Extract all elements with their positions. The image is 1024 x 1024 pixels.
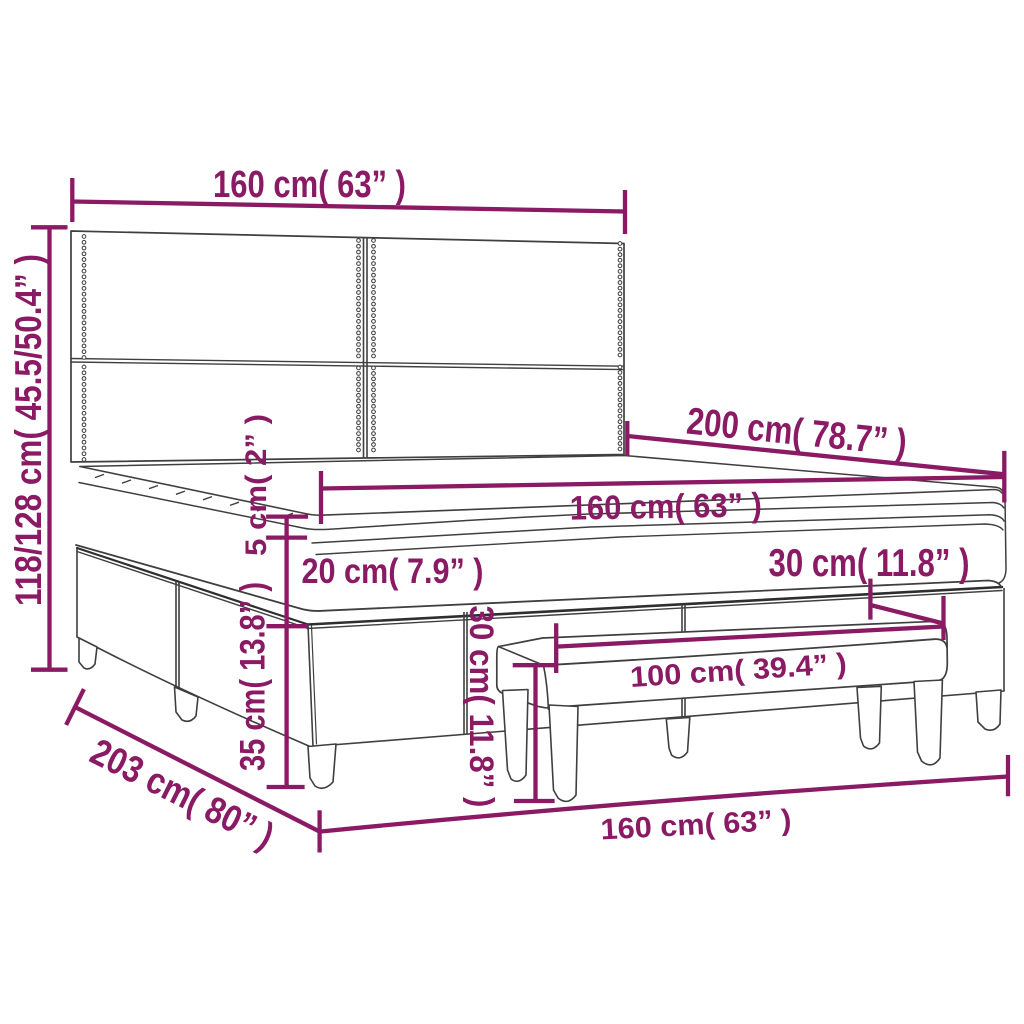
svg-text:20 cm( 7.9” ): 20 cm( 7.9” ): [302, 551, 484, 591]
svg-text:160 cm( 63” ): 160 cm( 63” ): [569, 486, 762, 527]
svg-text:118/128 cm( 45.5/50.4” ): 118/128 cm( 45.5/50.4” ): [8, 254, 49, 606]
svg-text:160 cm( 63” ): 160 cm( 63” ): [213, 164, 406, 206]
svg-text:30 cm( 11.8” ): 30 cm( 11.8” ): [769, 542, 970, 585]
svg-text:30 cm( 11.8” ): 30 cm( 11.8” ): [462, 606, 500, 808]
svg-text:5 cm( 2” ): 5 cm( 2” ): [240, 414, 273, 556]
svg-text:35 cm( 13.8” ): 35 cm( 13.8” ): [234, 582, 273, 771]
